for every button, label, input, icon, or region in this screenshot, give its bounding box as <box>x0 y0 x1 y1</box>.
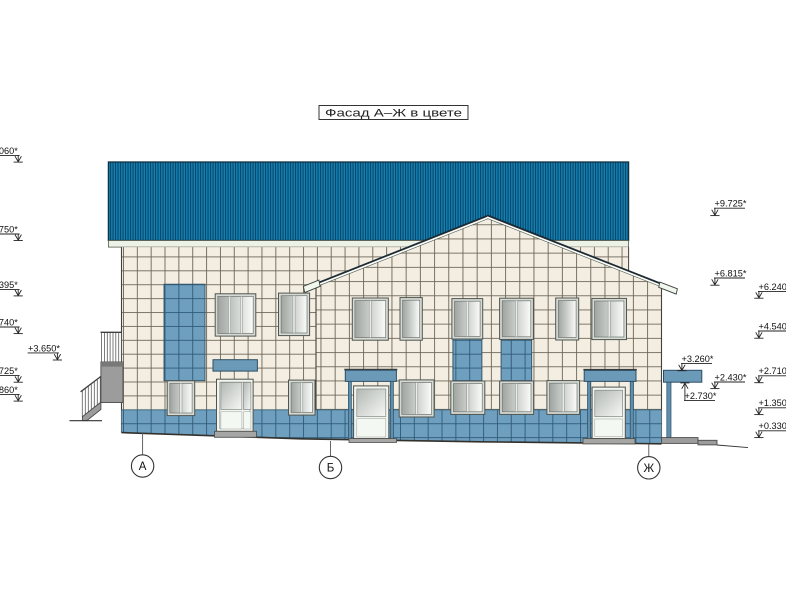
svg-text:+6.815*: +6.815* <box>715 268 747 278</box>
svg-text:+9.725*: +9.725* <box>715 199 747 209</box>
svg-text:+3.260*: +3.260* <box>682 354 714 364</box>
svg-text:+4.740*: +4.740* <box>0 317 18 327</box>
svg-text:+1.350*: +1.350* <box>759 398 786 408</box>
svg-text:+3.650*: +3.650* <box>28 343 60 353</box>
svg-text:+12.060*: +12.060* <box>0 146 18 156</box>
svg-text:+2.710*: +2.710* <box>759 366 786 376</box>
svg-text:+6.395*: +6.395* <box>0 280 18 290</box>
svg-text:+2.730*: +2.730* <box>685 391 717 401</box>
svg-text:+1.860*: +1.860* <box>0 385 18 395</box>
svg-text:А: А <box>139 461 147 473</box>
svg-text:+9.750*: +9.750* <box>0 224 18 234</box>
svg-text:+0.330*: +0.330* <box>759 421 786 431</box>
svg-text:+4.540*: +4.540* <box>759 321 786 331</box>
svg-text:+2.430*: +2.430* <box>715 372 747 382</box>
svg-text:+6.240*: +6.240* <box>759 282 786 292</box>
svg-text:Ж: Ж <box>643 463 654 475</box>
svg-text:Фасад А–Ж в цвете: Фасад А–Ж в цвете <box>325 108 462 120</box>
svg-text:Б: Б <box>327 463 335 475</box>
svg-text:+2.725*: +2.725* <box>0 366 18 376</box>
